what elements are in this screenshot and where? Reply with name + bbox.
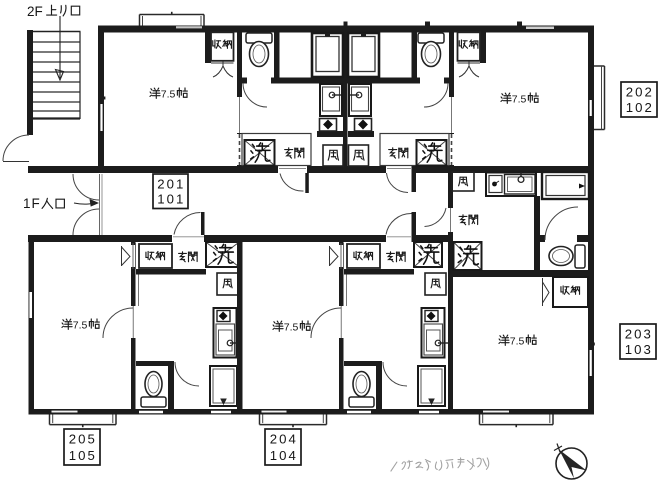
svg-text:7.5: 7.5: [510, 336, 525, 348]
svg-text:204: 204: [270, 432, 298, 447]
svg-text:2F: 2F: [27, 4, 43, 19]
svg-text:202: 202: [626, 85, 654, 100]
svg-text:201: 201: [157, 177, 185, 192]
svg-text:105: 105: [69, 448, 97, 463]
svg-text:203: 203: [625, 327, 653, 342]
svg-text:205: 205: [69, 432, 97, 447]
svg-text:102: 102: [626, 100, 654, 115]
svg-text:1F: 1F: [23, 196, 41, 211]
svg-text:7.5: 7.5: [284, 322, 299, 334]
svg-text:7.5: 7.5: [512, 94, 527, 106]
svg-text:104: 104: [270, 448, 298, 463]
svg-text:7.5: 7.5: [73, 320, 88, 332]
svg-text:103: 103: [625, 342, 653, 357]
svg-text:101: 101: [157, 192, 185, 207]
svg-text:7.5: 7.5: [161, 89, 176, 101]
